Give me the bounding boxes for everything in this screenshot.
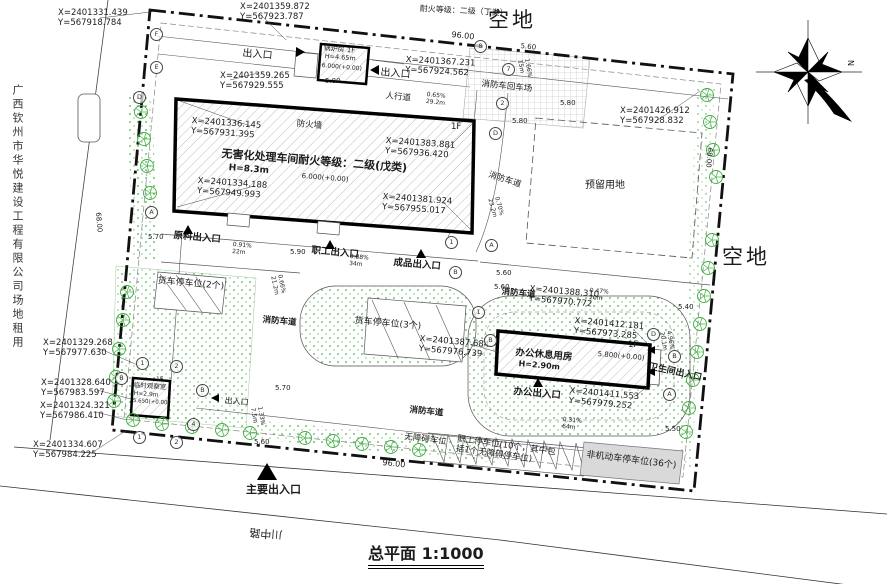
coord-left-4: X=2401334.607 Y=567984.225 xyxy=(33,440,103,460)
vacant-land-top: 空地 xyxy=(488,8,536,33)
entrance-arrow-icon xyxy=(257,463,277,480)
slope-f: 4.96% 20.1m xyxy=(658,330,675,351)
dim-590: 5.90 xyxy=(290,248,306,256)
axis-bubble-icon: D xyxy=(489,127,502,140)
north-label: N xyxy=(846,60,855,66)
plan-geometry xyxy=(0,0,887,584)
dim-570-b: 5.70 xyxy=(275,384,291,392)
slope-a: 0.91% 22m xyxy=(232,241,252,257)
dim-560-b: 5.60 xyxy=(496,269,512,277)
axis-bubble-icon: B xyxy=(115,372,128,385)
dim-68-right: 68.00 xyxy=(704,147,714,168)
slope-c: 0.47% 20m xyxy=(589,287,609,303)
entrance-arrow-icon xyxy=(416,249,426,258)
dim-560-d: 5.60 xyxy=(254,438,270,446)
coord-left-1: X=2401329.268 Y=567977.630 xyxy=(43,338,113,358)
axis-bubble-icon: 2 xyxy=(496,97,509,110)
coord-axis-d: X=2401359.265 Y=567929.555 xyxy=(220,71,290,91)
north-compass-icon xyxy=(756,20,862,124)
axis-bubble-icon: 1 xyxy=(136,357,149,370)
axis-bubble-icon: D xyxy=(647,328,660,341)
coord-left-3: X=2401324.321 Y=567986.410 xyxy=(40,401,110,421)
coord-boiler: X=2401367.231 Y=567924.562 xyxy=(405,55,476,79)
axis-bubble-icon: 2 xyxy=(170,436,183,449)
entrance-arrow-icon xyxy=(647,368,655,376)
slope-h: 0.31% 64m xyxy=(562,416,582,432)
axis-bubble-icon: 1 xyxy=(445,236,458,249)
entrance-arrow-icon xyxy=(211,394,219,402)
dim-570-a: 5.70 xyxy=(148,233,164,241)
dim-560-top: 5.60 xyxy=(520,42,536,52)
vacant-land-right: 空地 xyxy=(722,245,770,270)
axis-bubble-icon: D xyxy=(133,91,146,104)
entrance-arrow-icon xyxy=(533,378,543,387)
reserved-land: 预留用地 xyxy=(585,180,625,192)
main-building-floor: 1F xyxy=(451,122,461,132)
coord-left-2: X=2401328.640 Y=567983.597 xyxy=(41,378,111,398)
road-name: 川中路 xyxy=(249,525,283,540)
axis-bubble-icon: 1 xyxy=(133,431,146,444)
axis-bubble-icon: F xyxy=(150,28,163,41)
axis-bubble-icon: 7 xyxy=(502,63,515,76)
dim-540: 5.40 xyxy=(678,303,694,311)
axis-bubble-icon: 1 xyxy=(472,306,485,319)
dim-550: 5.50 xyxy=(665,425,681,433)
dim-580-c: 5.80 xyxy=(512,117,528,125)
coord-top-2: X=2401359.872 Y=567923.787 xyxy=(240,2,310,22)
tree-icon xyxy=(710,171,723,184)
axis-bubble-icon: B xyxy=(449,266,462,279)
axis-bubble-icon: A xyxy=(485,239,498,252)
entrance-arrow-icon xyxy=(183,225,193,234)
axis-bubble-icon: E xyxy=(150,61,163,74)
dim-580-b: 5.80 xyxy=(560,99,576,107)
axis-bubble-icon: 8 xyxy=(474,40,487,53)
slope-g: 1.33% 7.5m xyxy=(249,406,266,427)
main-entrance-label: 主要出入口 xyxy=(246,484,301,497)
entrance-arrow-icon xyxy=(647,346,655,354)
axis-bubble-icon: 2 xyxy=(170,360,183,373)
plan-title: 总平面 1:1000 xyxy=(368,545,484,569)
coord-top-left: X=2401331.439 Y=567918.784 xyxy=(58,8,128,28)
entrance-arrow-icon xyxy=(296,47,305,57)
axis-bubble-icon: B xyxy=(484,334,497,347)
entrance-nw-label: 出入口 xyxy=(242,48,273,62)
company-strip: 广西钦州市华悦建设工程有限公司场地租用 xyxy=(10,84,23,350)
axis-bubble-icon: B xyxy=(196,384,209,397)
firewall-label: 防火墙 xyxy=(296,119,322,131)
dim-580-a: 5.80 xyxy=(325,77,341,85)
axis-bubble-icon: A xyxy=(145,206,158,219)
dim-68-left: 68.00 xyxy=(94,212,104,233)
site-plan-drawing: X=2401331.439 Y=567918.784X=2401359.872 … xyxy=(0,0,887,584)
entrance-arrow-icon xyxy=(370,65,379,75)
axis-bubble-icon: 4 xyxy=(187,418,200,431)
entrance-west-label: 出入口 xyxy=(224,396,249,407)
entrance-arrow-icon xyxy=(325,240,335,249)
axis-bubble-icon: B xyxy=(668,350,681,363)
slope-turnaround: 1.66% 15m xyxy=(516,58,533,79)
coord-right: X=2401426.912 Y=567928.832 xyxy=(620,106,690,126)
entrance-n2-label: 出入口 xyxy=(380,67,411,81)
slope-b: 0.88% 34m xyxy=(349,253,369,269)
slope-walkway: 0.65% 29.2m xyxy=(426,91,447,107)
office-floor: 1F xyxy=(628,340,638,350)
tree-icon xyxy=(706,234,719,247)
axis-bubble-icon: A xyxy=(663,388,676,401)
